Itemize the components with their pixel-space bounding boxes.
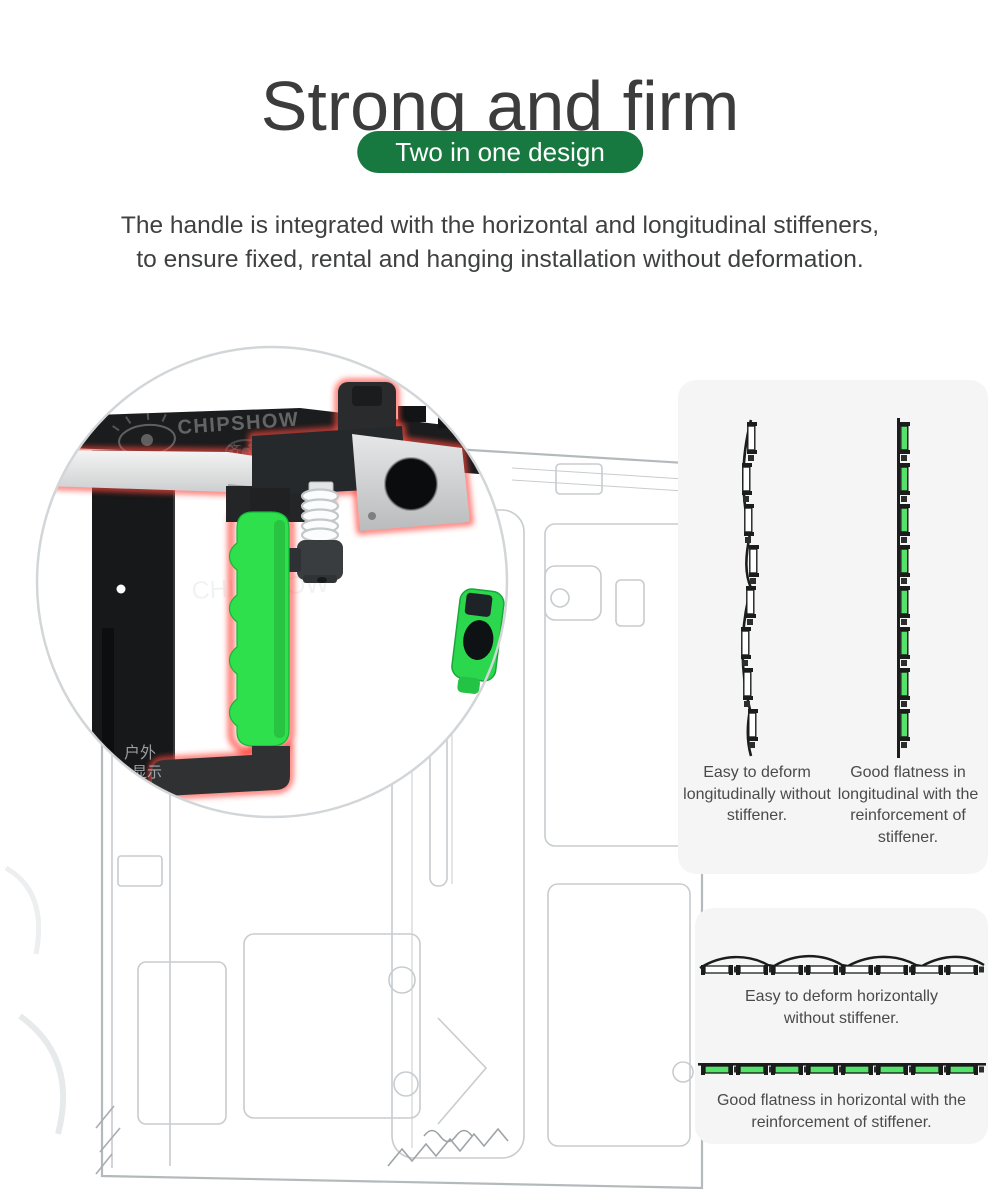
frame-hole [112, 764, 122, 774]
longitudinal-comparison-panel: Easy to deform longitudinally without st… [678, 380, 988, 874]
product-feature-page: Strong and firm Two in one design The ha… [0, 0, 1000, 1200]
pivot-plate [352, 434, 470, 531]
design-badge: Two in one design [357, 131, 643, 173]
side-label-outdoor: 户外 [124, 744, 156, 762]
horizontal-comparison-panel: Easy to deform horizontally without stif… [695, 908, 988, 1144]
tab-notch [352, 386, 382, 406]
spring [302, 482, 338, 542]
caption-horizontal-with: Good flatness in horizontal with the rei… [697, 1090, 986, 1133]
diagram-longitudinal-with-stiffener [885, 418, 925, 758]
description-line-2: to ensure fixed, rental and hanging inst… [0, 246, 1000, 273]
caption-longitudinal-with: Good flatness in longitudinal with the r… [830, 762, 986, 848]
caption-longitudinal-without: Easy to deform longitudinally without st… [682, 762, 832, 827]
frame-hole [117, 585, 126, 594]
diagram-horizontal-without-stiffener [698, 948, 986, 978]
description-line-1: The handle is integrated with the horizo… [0, 212, 1000, 239]
grip-shade [274, 520, 285, 738]
diagram-longitudinal-without-stiffener [735, 418, 775, 758]
caption-horizontal-without: Easy to deform horizontally without stif… [735, 986, 948, 1029]
diagram-horizontal-with-stiffener [698, 1054, 986, 1080]
